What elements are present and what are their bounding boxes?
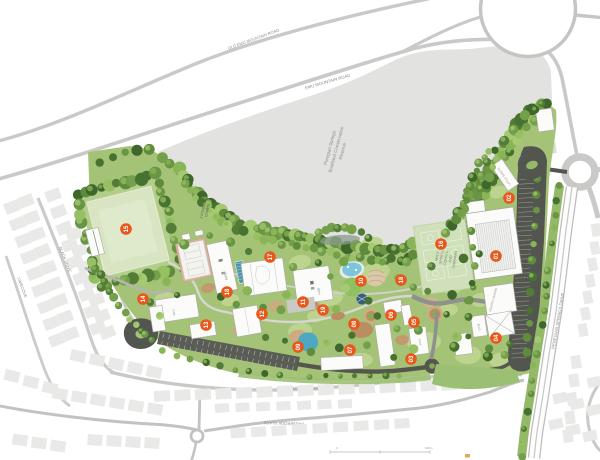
svg-text:18: 18: [225, 288, 231, 295]
svg-text:10: 10: [359, 277, 365, 284]
svg-text:06: 06: [389, 311, 395, 318]
svg-text:01: 01: [494, 252, 500, 259]
svg-text:11: 11: [301, 298, 307, 305]
svg-text:19: 19: [321, 306, 327, 313]
svg-text:08: 08: [352, 320, 358, 327]
svg-text:04: 04: [494, 334, 500, 341]
svg-text:09: 09: [296, 343, 302, 350]
svg-text:17: 17: [268, 253, 274, 260]
svg-text:07: 07: [348, 346, 354, 353]
svg-text:14: 14: [141, 295, 147, 302]
svg-text:03: 03: [409, 355, 415, 362]
svg-text:15: 15: [124, 225, 130, 232]
svg-text:02: 02: [507, 194, 513, 201]
svg-text:16: 16: [439, 240, 445, 247]
svg-text:05: 05: [412, 318, 418, 325]
svg-text:18: 18: [399, 276, 405, 283]
svg-text:12: 12: [260, 310, 266, 317]
svg-text:13: 13: [204, 321, 210, 328]
svg-text:100m: 100m: [425, 446, 433, 450]
